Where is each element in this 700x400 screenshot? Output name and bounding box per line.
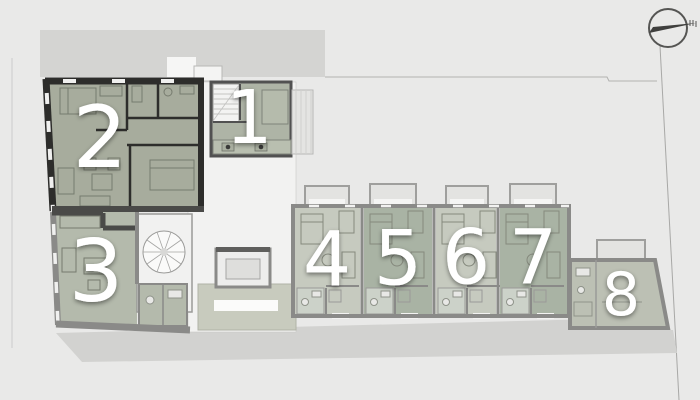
unit-1-label[interactable]: 1 bbox=[225, 75, 272, 161]
unit-2-area[interactable]: 2 bbox=[45, 78, 204, 212]
unit-7-area[interactable]: 7 bbox=[500, 208, 567, 319]
unit-4-area[interactable]: 4 bbox=[295, 208, 360, 319]
unit-5-area[interactable]: 5 bbox=[364, 208, 432, 319]
patio-table bbox=[214, 300, 278, 311]
unit-1-terrace bbox=[292, 90, 313, 154]
unit-8-label[interactable]: 8 bbox=[602, 260, 640, 330]
unit-3-annex bbox=[139, 284, 187, 326]
site-plan-page: Baross utca 40. bbox=[0, 0, 700, 400]
unit-6-label[interactable]: 6 bbox=[442, 213, 490, 302]
unit-3-area[interactable]: 3 bbox=[52, 212, 192, 330]
unit-5-label[interactable]: 5 bbox=[374, 214, 422, 303]
unit-3-label[interactable]: 3 bbox=[69, 222, 124, 322]
unit-8-balcony bbox=[597, 240, 645, 260]
unit-6-area[interactable]: 6 bbox=[436, 208, 500, 319]
elevator-structure bbox=[216, 247, 270, 287]
unit-7-label[interactable]: 7 bbox=[509, 213, 557, 302]
unit-4-label[interactable]: 4 bbox=[303, 215, 351, 304]
site-plan-drawing: 1 bbox=[0, 0, 700, 400]
unit-2-label[interactable]: 2 bbox=[73, 88, 128, 188]
row-houses: 4 5 6 7 bbox=[293, 184, 569, 319]
neighbor-building bbox=[40, 30, 325, 77]
